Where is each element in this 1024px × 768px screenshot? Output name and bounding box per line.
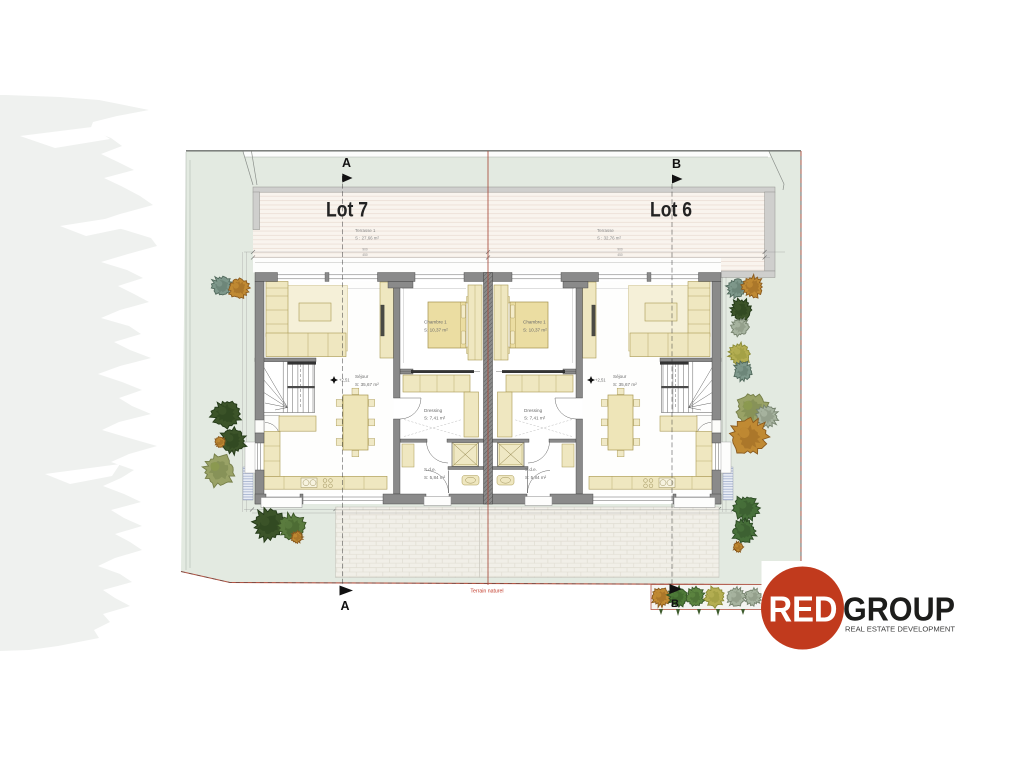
svg-text:S: 35,67 m²: S: 35,67 m² [613, 382, 637, 387]
svg-text:RED: RED [769, 589, 838, 630]
svg-text:900: 900 [617, 248, 623, 252]
svg-text:Terrain naturel: Terrain naturel [470, 589, 503, 595]
svg-text:450: 450 [362, 253, 368, 257]
svg-text:B: B [672, 157, 681, 171]
svg-text:+2,51: +2,51 [595, 378, 606, 383]
svg-text:+2,51: +2,51 [339, 378, 350, 383]
svg-text:S: 7,41 m²: S: 7,41 m² [524, 416, 546, 421]
svg-text:S: 5,84 m²: S: 5,84 m² [424, 475, 446, 480]
svg-text:Chambre 1: Chambre 1 [424, 320, 447, 325]
svg-text:S.d.e.: S.d.e. [525, 467, 537, 472]
svg-text:Lot 6: Lot 6 [650, 198, 692, 222]
svg-text:S: 35,67 m²: S: 35,67 m² [355, 382, 379, 387]
svg-text:S : 27,66 m²: S : 27,66 m² [355, 236, 379, 241]
svg-text:S: 5,84 m²: S: 5,84 m² [525, 475, 547, 480]
svg-text:GROUP: GROUP [843, 591, 955, 628]
svg-text:Terrasse: Terrasse [597, 228, 614, 233]
svg-text:450: 450 [617, 253, 623, 257]
svg-text:S.d.e.: S.d.e. [424, 467, 436, 472]
svg-text:Dressing: Dressing [424, 408, 443, 413]
svg-text:S: 7,41 m²: S: 7,41 m² [424, 416, 446, 421]
svg-text:Dressing: Dressing [524, 408, 543, 413]
svg-text:S: 10,37 m²: S: 10,37 m² [523, 328, 547, 333]
svg-text:Lot 7: Lot 7 [326, 198, 368, 222]
svg-text:S : 32,76 m²: S : 32,76 m² [597, 236, 621, 241]
svg-text:B: B [671, 598, 679, 610]
svg-text:REAL ESTATE DEVELOPMENT: REAL ESTATE DEVELOPMENT [845, 625, 955, 634]
svg-text:Chambre 1: Chambre 1 [523, 320, 546, 325]
svg-text:900: 900 [362, 248, 368, 252]
svg-text:Séjour: Séjour [355, 374, 369, 379]
svg-text:Terrasse 1: Terrasse 1 [355, 228, 376, 233]
svg-text:Séjour: Séjour [613, 374, 627, 379]
svg-text:A: A [340, 599, 349, 613]
svg-text:S: 10,37 m²: S: 10,37 m² [424, 328, 448, 333]
svg-text:A: A [342, 156, 351, 170]
